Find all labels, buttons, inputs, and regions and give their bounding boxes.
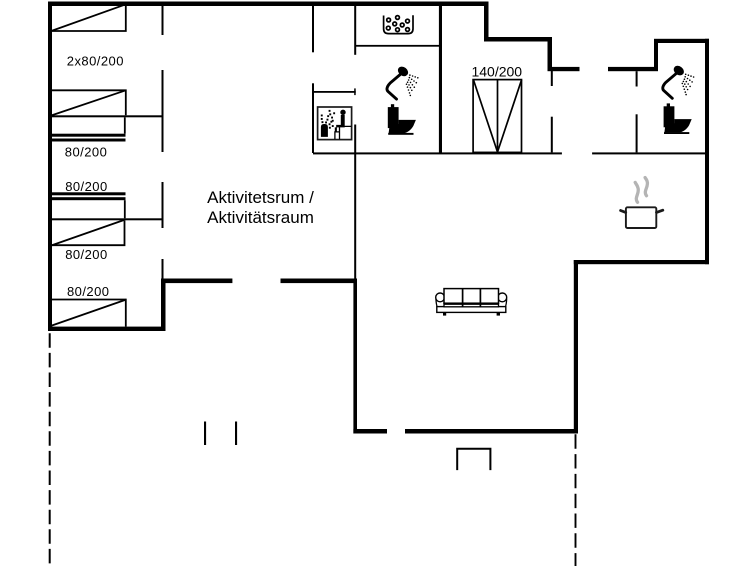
svg-text:140/200: 140/200 <box>471 63 522 79</box>
svg-text:80/200: 80/200 <box>65 247 107 262</box>
svg-text:Aktivitetsrum /: Aktivitetsrum / <box>207 188 314 207</box>
svg-text:2x80/200: 2x80/200 <box>67 54 124 69</box>
svg-text:80/200: 80/200 <box>65 144 107 159</box>
svg-text:80/200: 80/200 <box>65 179 107 194</box>
svg-text:Aktivitätsraum: Aktivitätsraum <box>207 208 314 227</box>
svg-text:80/200: 80/200 <box>67 284 109 299</box>
